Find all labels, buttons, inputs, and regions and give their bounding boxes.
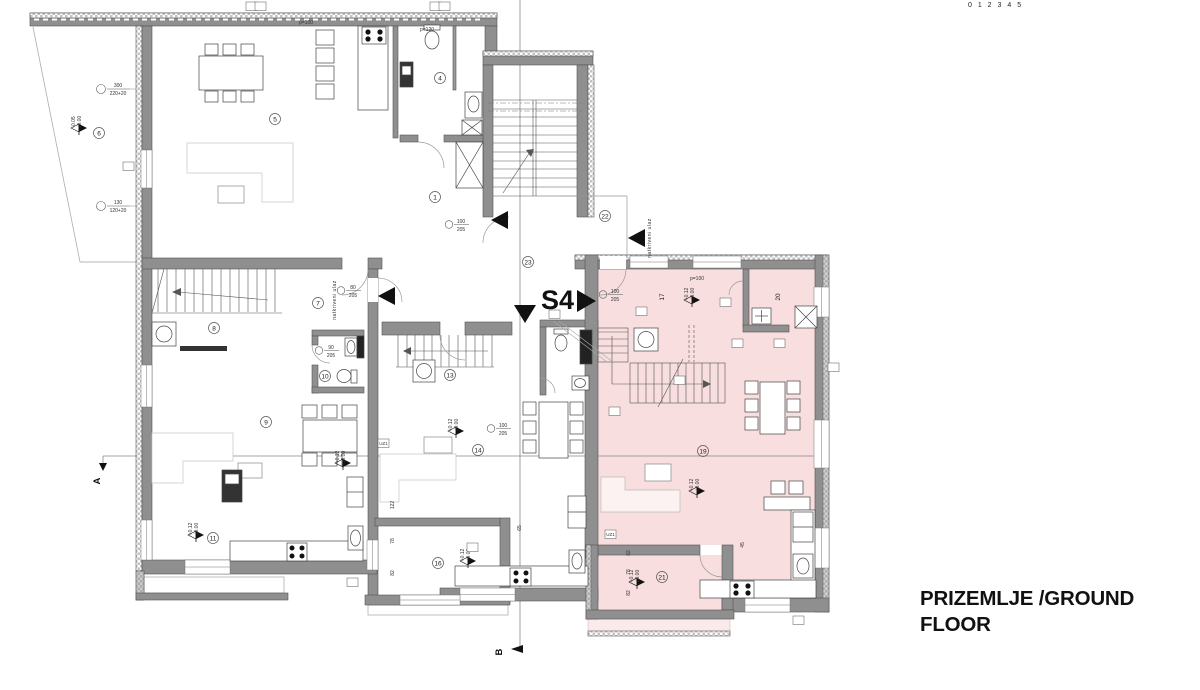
room-number: 16: [434, 560, 442, 567]
section-a-arrow-icon: [99, 463, 107, 471]
elevation-marker: +0.12±0.00: [448, 418, 464, 438]
elevation-marker: -0.05±0.00: [71, 116, 87, 135]
svg-text:100: 100: [499, 423, 508, 429]
drawing-title: PRIZEMLJE /GROUND FLOOR: [920, 586, 1134, 637]
svg-text:80: 80: [350, 285, 356, 291]
room-number: 20: [775, 293, 782, 301]
component-label-box: [123, 162, 134, 171]
svg-text:205: 205: [611, 297, 620, 303]
component-label-box: [467, 543, 478, 552]
component-label-box: [347, 578, 358, 587]
room-number: 19: [699, 448, 707, 455]
svg-text:45: 45: [740, 542, 746, 548]
svg-text:UZ1: UZ1: [379, 441, 388, 446]
covered-entrance-label: natkriveni ulaz: [647, 218, 653, 257]
svg-text:82: 82: [626, 590, 632, 596]
svg-text:120+20: 120+20: [110, 208, 127, 214]
section-b-arrow-icon: [511, 645, 523, 653]
terrace-boundary: [33, 27, 508, 615]
component-label-box: [439, 2, 450, 11]
drawing-title-line1: PRIZEMLJE /GROUND: [920, 586, 1134, 612]
room-number: 4: [438, 75, 442, 82]
room-number: 22: [601, 213, 609, 220]
floor-plan-page: S4 A B 0 1 2 3 4 5 145678910111314161921…: [0, 0, 1200, 690]
room-number: 10: [321, 373, 329, 380]
svg-text:±0.00: ±0.00: [194, 523, 200, 536]
component-label-box: [636, 307, 647, 316]
svg-text:p=100: p=100: [690, 276, 704, 282]
entrance-arrow-icon: [628, 229, 645, 247]
room-number: 17: [659, 293, 666, 301]
component-label-box: [720, 298, 731, 307]
furniture-top-apartment: [187, 25, 483, 203]
svg-text:p=100: p=100: [299, 20, 313, 26]
svg-text:100: 100: [611, 289, 620, 295]
entrance-arrow-icon: [514, 305, 536, 323]
room-number: 11: [210, 535, 217, 542]
wall-dimension-labels: 300220+20130120+20: [97, 83, 137, 214]
svg-text:UZ1: UZ1: [606, 532, 615, 537]
section-a-label: A: [92, 477, 103, 484]
component-label-box: [609, 407, 620, 416]
component-label-box: [774, 339, 785, 348]
svg-text:±0.00: ±0.00: [341, 451, 347, 464]
svg-text:p=120: p=120: [420, 27, 434, 33]
room-number: 7: [316, 300, 320, 307]
svg-text:100: 100: [457, 219, 466, 225]
entrance-arrow-icon: [491, 211, 508, 229]
component-label-box: [549, 310, 560, 319]
staircase-center-unit: [396, 335, 494, 367]
room-number: 14: [474, 447, 482, 454]
component-label-box: [793, 616, 804, 625]
room-number: 6: [97, 130, 101, 137]
section-marker-b: B: [494, 645, 523, 655]
room-number: 23: [524, 259, 532, 266]
component-label-box: [732, 339, 743, 348]
svg-text:78: 78: [390, 538, 396, 544]
scale-bar-fragment: 0 1 2 3 4 5: [968, 2, 1023, 9]
svg-text:122: 122: [390, 501, 396, 510]
svg-text:±0.00: ±0.00: [454, 419, 460, 432]
svg-text:±0.00: ±0.00: [635, 570, 641, 583]
staircase-main: [488, 100, 583, 196]
svg-text:65: 65: [517, 525, 523, 531]
svg-text:90: 90: [328, 345, 334, 351]
component-label-box: [674, 376, 685, 385]
drawing-title-line2: FLOOR: [920, 612, 1134, 638]
svg-text:300: 300: [114, 83, 123, 89]
section-marker-a: A: [92, 463, 107, 484]
svg-text:±0.00: ±0.00: [77, 116, 83, 129]
furniture-center-unit: [380, 329, 592, 586]
component-label-box: [828, 363, 839, 372]
svg-text:130: 130: [114, 200, 123, 206]
svg-text:±0.00: ±0.00: [695, 479, 701, 492]
room-number: 9: [264, 419, 268, 426]
room-number: 21: [658, 574, 666, 581]
covered-entrance-label: natkriveni ulaz: [332, 280, 338, 319]
svg-text:220+20: 220+20: [110, 91, 127, 97]
entrance-arrow-icon: [378, 287, 395, 305]
svg-text:82: 82: [626, 550, 632, 556]
svg-text:205: 205: [327, 353, 336, 359]
component-label-box: [255, 2, 266, 11]
room-number: 8: [212, 325, 216, 332]
svg-text:205: 205: [457, 227, 466, 233]
svg-text:±0.00: ±0.00: [690, 288, 696, 301]
svg-text:205: 205: [349, 293, 358, 299]
room-number: 1: [433, 194, 437, 201]
room-number: 5: [273, 116, 277, 123]
room-number: 13: [446, 372, 454, 379]
svg-text:205: 205: [499, 431, 508, 437]
elevation-marker: +0.12±0.00: [188, 522, 204, 542]
svg-text:82: 82: [390, 570, 396, 576]
section-b-label: B: [494, 648, 505, 655]
